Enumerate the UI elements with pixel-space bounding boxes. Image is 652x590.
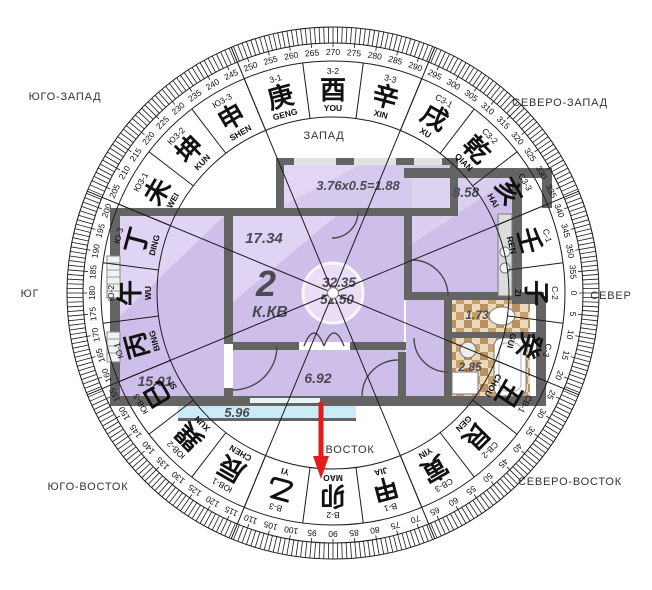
sector-pinyin-label: MAO [323,473,343,483]
degree-tick [188,503,197,516]
degree-tick [469,503,478,516]
degree-tick [410,40,415,55]
direction-label-yugo-vostok: ЮГО-ВОСТОК [48,481,129,493]
degree-tick [535,434,551,445]
degree-tick [80,211,95,216]
degree-tick [251,531,256,546]
degree-tick [359,542,361,558]
degree-tick [278,33,281,49]
degree-tick [118,440,131,449]
window [354,158,396,165]
sector-pinyin-label: JIA [373,465,388,478]
degree-label: 270 [326,47,340,57]
degree-tick [173,493,183,506]
degree-label: 230 [169,100,187,117]
degree-tick [71,247,91,250]
degree-tick [110,148,123,157]
degree-tick [132,118,144,128]
degree-tick [516,112,528,123]
degree-label: 190 [90,243,102,259]
degree-label: 85 [349,528,360,539]
center-dot [328,288,339,299]
fengshui-compass-overlay: 3.76x0.5=1.88 8.58 17.34 2 К.КВ 32.35 51… [0,0,652,590]
degree-tick [545,425,559,433]
degree-tick [350,542,351,558]
degree-tick [402,533,406,548]
degree-label: 340 [552,202,566,219]
direction-label-yug: ЮГ [21,288,40,300]
degree-tick [342,27,343,43]
degree-tick [319,27,320,43]
degree-tick [393,35,397,51]
degree-tick [521,451,536,464]
bath-area-label: 2.85 [457,360,482,374]
sector-hanzi-label: 午 [115,280,145,306]
degree-tick [79,366,94,371]
degree-label: 0 [569,291,579,296]
sector-divider [356,63,363,119]
degree-label: 280 [367,50,383,62]
degree-label: 205 [107,182,122,199]
degree-tick [527,450,539,460]
degree-label: 265 [304,47,319,58]
degree-tick [158,482,168,494]
degree-label: 145 [127,422,143,440]
degree-tick [126,450,138,460]
degree-tick [67,302,83,303]
sector-divider [303,467,310,523]
degree-tick [582,310,598,311]
degree-tick [287,31,290,51]
degree-label: 275 [347,47,362,58]
degree-tick [500,479,511,491]
degree-tick [200,506,210,523]
sector-pinyin-label: YOU [324,103,342,113]
degree-tick [581,323,597,325]
kitchen-area-label: 8.58 [453,185,480,200]
degree-tick [135,115,147,126]
degree-tick [324,27,325,43]
degree-tick [513,108,525,119]
degree-tick [85,198,100,204]
degree-tick [77,362,92,366]
degree-tick [310,28,312,48]
degree-tick [255,532,260,547]
degree-tick [305,542,307,558]
degree-tick [188,70,197,83]
degree-label: 130 [169,469,187,486]
degree-label: 125 [186,482,204,498]
degree-tick [522,118,534,128]
shower-tray [452,372,478,394]
degree-tick [572,366,587,371]
degree-label: 220 [140,129,157,147]
degree-label: 350 [564,243,576,259]
degree-tick [68,314,88,316]
degree-tick [535,137,548,146]
degree-tick [148,473,159,485]
wall [224,216,233,344]
degree-tick [569,374,584,379]
degree-tick [519,460,531,471]
degree-tick [112,433,125,442]
degree-tick [324,543,325,559]
degree-tick [148,102,159,114]
degree-label: 95 [307,528,318,539]
degree-tick [423,526,429,541]
degree-tick [123,129,136,139]
degree-tick [465,67,473,81]
degree-tick [368,541,370,557]
degree-tick [107,152,121,160]
degree-tick [456,506,466,523]
degree-tick [251,40,256,55]
window [250,398,320,403]
degree-label: 100 [283,524,299,536]
degree-tick [491,481,504,496]
degree-tick [138,112,150,123]
degree-tick [73,345,89,348]
degree-tick [287,535,290,555]
degree-tick [132,457,144,467]
degree-tick [474,495,485,511]
degree-tick [255,39,260,54]
direction-label-severo-zapad: СЕВЕРО-ЗАПАД [512,97,608,109]
degree-tick [238,45,244,60]
degree-label: 105 [262,519,279,532]
degree-label: 345 [559,222,572,239]
degree-tick [75,229,91,233]
degree-label: 250 [242,59,259,73]
degree-tick [81,206,96,211]
degree-tick [376,31,379,51]
degree-tick [578,242,594,245]
wall [404,208,412,300]
degree-label: 215 [127,146,143,164]
degree-tick [135,460,147,471]
degree-label: 355 [567,264,578,279]
degree-tick [578,345,594,348]
direction-label-yugo-zapad: ЮГО-ЗАПАД [29,91,102,103]
degree-label: 50 [481,471,495,485]
degree-tick [580,251,596,254]
degree-tick [74,233,90,237]
degree-tick [166,86,176,98]
degree-tick [273,34,277,50]
degree-tick [516,463,528,474]
degree-tick [582,274,598,275]
degree-tick [115,434,131,445]
degree-tick [581,261,597,263]
degree-tick [282,538,285,554]
degree-tick [269,536,273,552]
degree-tick [546,160,563,170]
degree-label: 295 [426,67,443,82]
degree-tick [385,33,388,49]
degree-label: 35 [523,424,537,438]
degree-label: 55 [464,484,478,498]
degree-tick [70,251,86,254]
degree-tick [180,75,191,91]
degree-tick [540,144,553,153]
degree-tick [319,543,320,559]
sector-pinyin-label: WU [143,286,153,300]
degree-tick [359,28,361,44]
degree-tick [480,495,489,508]
degree-tick [192,505,200,519]
sector-pinyin-label: ZI [513,289,523,297]
wall [398,352,406,398]
balcony-top-area-label: 3.76x0.5=1.88 [316,178,400,193]
diagram-canvas: 3.76x0.5=1.88 8.58 17.34 2 К.КВ 32.35 51… [0,0,652,590]
degree-label: 90 [328,529,338,539]
degree-tick [543,148,556,157]
degree-tick [571,370,586,375]
degree-tick [70,256,86,258]
degree-tick [530,129,543,139]
degree-tick [238,526,244,541]
degree-label: 120 [204,494,222,510]
degree-tick [410,531,415,546]
degree-tick [393,536,397,552]
degree-tick [169,490,179,503]
degree-tick [79,215,94,220]
degree-tick [473,500,482,513]
degree-tick [535,140,551,151]
degree-tick [129,122,144,135]
degree-tick [519,115,531,126]
degree-label: 60 [447,495,460,509]
degree-tick [573,220,588,224]
apartment-number: 2 [255,263,276,304]
degree-tick [571,211,586,216]
degree-tick [540,433,553,442]
degree-tick [480,78,489,91]
degree-tick [583,306,599,307]
degree-tick [497,92,507,104]
degree-tick [73,238,89,241]
degree-tick [68,319,84,321]
degree-tick [521,122,536,135]
sector-divider [303,63,310,119]
degree-tick [402,37,406,52]
degree-tick [583,279,599,280]
degree-tick [301,29,303,45]
degree-tick [487,490,497,503]
wall [444,300,452,406]
degree-tick [389,34,393,50]
degree-label: 110 [242,512,258,526]
direction-label-sever: СЕВЕР [590,290,631,302]
degree-tick [296,541,298,557]
degree-label: 70 [409,513,422,526]
degree-tick [575,247,595,250]
degree-label: 140 [140,439,157,457]
degree-tick [578,270,598,272]
degree-tick [169,83,179,96]
degree-tick [577,233,593,237]
degree-tick [581,256,597,258]
degree-tick [155,479,166,491]
degree-label: 25 [545,388,558,401]
degree-tick [406,39,411,54]
degree-tick [69,261,85,263]
degree-tick [145,105,159,119]
hall-area-label: 6.92 [304,370,331,386]
degree-tick [177,78,186,91]
degree-tick [123,447,136,457]
degree-tick [582,265,598,267]
degree-tick [490,487,500,499]
balcony-bottom-area-label: 5.96 [224,405,250,420]
degree-label: 290 [407,59,424,73]
degree-tick [74,349,90,353]
degree-tick [406,532,411,547]
degree-tick [291,540,294,556]
degree-label: 285 [387,54,404,67]
degree-tick [85,383,100,389]
degree-tick [68,310,84,311]
degree-tick [192,67,200,81]
degree-tick [75,353,91,357]
degree-tick [269,35,273,51]
degree-tick [576,229,592,233]
degree-label: 305 [463,87,481,103]
degree-tick [121,443,134,453]
degree-tick [572,215,587,220]
degree-tick [314,542,315,558]
degree-tick [68,274,84,275]
degree-tick [282,32,285,48]
degree-tick [246,529,251,544]
degree-tick [530,447,543,457]
degree-tick [173,81,183,94]
degree-tick [273,537,277,553]
degree-tick [483,81,493,94]
degree-tick [103,160,120,170]
degree-tick [70,328,86,330]
degree-tick [381,32,384,48]
degree-label: 75 [389,520,401,532]
degree-label: 195 [94,222,107,239]
degree-tick [107,425,121,433]
degree-tick [363,29,365,45]
wall [276,158,284,216]
degree-tick [474,75,485,91]
degree-label: 310 [479,100,497,117]
degree-tick [68,265,84,267]
direction-label-vostok: ВОСТОК [325,444,374,456]
degree-tick [145,467,159,481]
degree-tick [80,370,95,375]
degree-tick [158,92,168,104]
wall [350,342,406,350]
degree-tick [67,284,83,285]
degree-tick [70,332,86,335]
degree-tick [71,336,91,339]
degree-tick [155,95,166,107]
degree-tick [152,476,163,488]
degree-tick [166,487,176,499]
degree-label: 210 [116,164,132,182]
degree-tick [372,30,375,46]
degree-tick [184,72,193,85]
direction-label-zapad: ЗАПАД [304,130,345,142]
degree-tick [363,541,365,557]
degree-tick [575,336,595,339]
degree-tick [414,41,419,56]
degree-tick [566,383,581,389]
wall [233,342,299,350]
degree-tick [346,543,347,559]
degree-tick [296,30,298,46]
degree-tick [121,133,134,143]
degree-label: 170 [89,327,101,343]
degree-tick [138,463,150,474]
degree-tick [67,279,83,280]
degree-tick [487,83,497,96]
degree-label: 255 [262,53,279,66]
apartment-type: К.КВ [252,304,288,321]
sector-pinyin-label: YI [280,466,290,478]
degree-tick [346,27,347,43]
degree-label: 15 [560,350,572,362]
degree-label: 80 [369,525,380,537]
degree-tick [77,220,92,224]
degree-label: 10 [565,329,577,340]
degree-label: 260 [283,49,299,61]
degree-tick [503,476,514,488]
degree-tick [580,332,596,335]
sector-divider [356,467,363,523]
degree-tick [152,98,163,110]
degree-tick [372,540,375,556]
degree-tick [385,538,388,554]
degree-tick [162,89,175,104]
wc-area-label: 1.73 [465,308,489,322]
degree-tick [546,416,563,426]
degree-label: 20 [553,369,566,382]
living-area-label: 17.34 [245,230,283,247]
degree-tick [278,538,281,554]
room-corridor [406,300,444,396]
degree-tick [342,543,343,559]
degree-tick [177,495,186,508]
direction-label-severo-vostok: СЕВЕРО-ВОСТОК [518,476,622,488]
degree-tick [67,306,83,307]
wall [284,208,458,216]
degree-tick [423,45,429,60]
degree-tick [368,30,370,46]
degree-label: 5 [568,311,578,317]
degree-label: 185 [87,264,98,279]
degree-tick [115,140,131,151]
degree-tick [314,28,315,44]
degree-tick [578,341,594,344]
degree-tick [200,63,210,80]
degree-tick [522,457,534,467]
degree-tick [180,495,191,511]
degree-label: 245 [223,67,240,82]
degree-tick [533,443,546,453]
degree-tick [301,541,303,557]
degree-tick [578,238,594,241]
degree-tick [260,533,264,548]
degree-tick [535,440,548,449]
degree-tick [310,538,312,558]
degree-tick [110,429,123,438]
degree-tick [389,537,393,553]
